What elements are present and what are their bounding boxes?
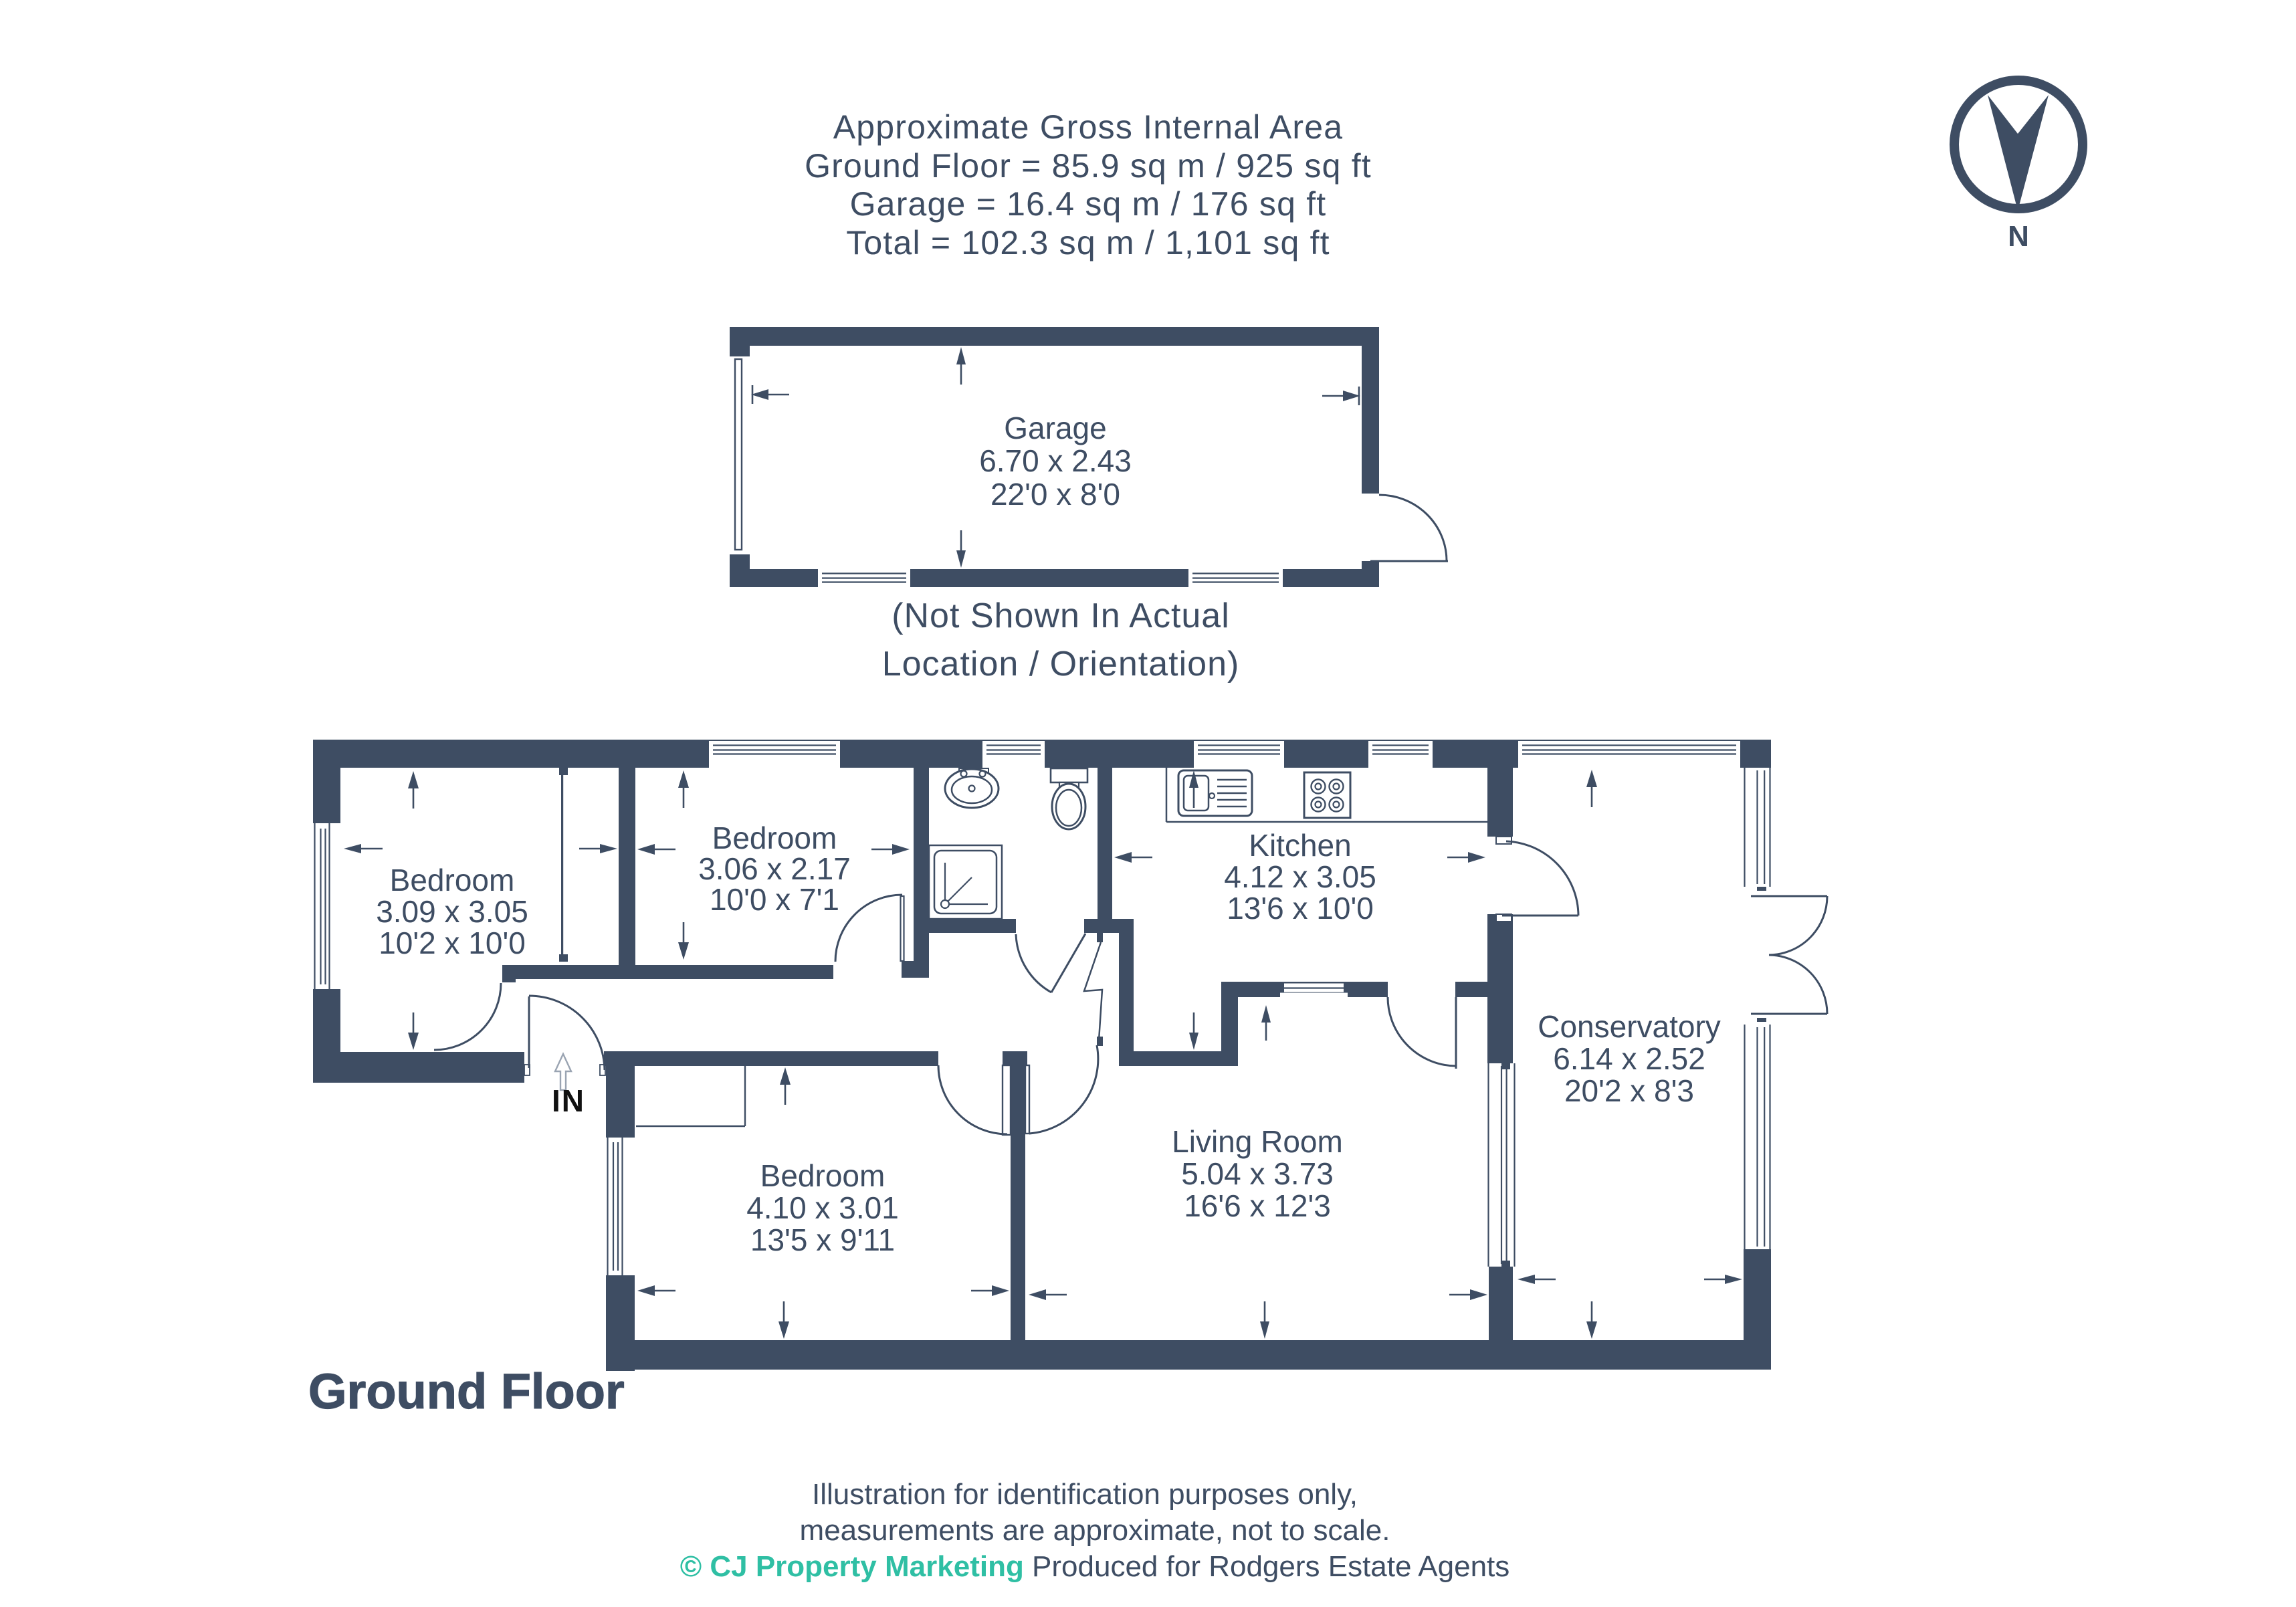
svg-text:10'2 x 10'0: 10'2 x 10'0	[379, 926, 526, 960]
svg-text:13'6 x 10'0: 13'6 x 10'0	[1227, 891, 1374, 926]
svg-text:4.12 x 3.05: 4.12 x 3.05	[1224, 859, 1376, 894]
svg-text:10'0 x 7'1: 10'0 x 7'1	[710, 882, 839, 917]
svg-text:© CJ Property Marketing Produ: © CJ Property Marketing Produced for Rod…	[680, 1550, 1510, 1583]
svg-text:22'0 x 8'0: 22'0 x 8'0	[990, 477, 1120, 512]
svg-text:Kitchen: Kitchen	[1249, 828, 1351, 863]
svg-text:Bedroom: Bedroom	[760, 1158, 885, 1193]
svg-text:Garage: Garage	[1004, 411, 1106, 445]
svg-text:Bedroom: Bedroom	[712, 821, 837, 855]
svg-text:IN: IN	[552, 1083, 585, 1118]
svg-text:Ground Floor = 85.9 sq m / 925: Ground Floor = 85.9 sq m / 925 sq ft	[805, 147, 1372, 185]
svg-text:Approximate Gross Internal Are: Approximate Gross Internal Area	[833, 108, 1344, 146]
svg-text:6.14 x 2.52: 6.14 x 2.52	[1553, 1041, 1705, 1076]
svg-text:Bedroom: Bedroom	[390, 863, 515, 897]
svg-text:3.06 x 2.17: 3.06 x 2.17	[698, 851, 851, 886]
svg-text:16'6 x 12'3: 16'6 x 12'3	[1184, 1188, 1331, 1223]
svg-text:3.09 x 3.05: 3.09 x 3.05	[376, 894, 528, 929]
svg-text:Ground Floor: Ground Floor	[308, 1364, 625, 1419]
svg-text:N: N	[2008, 220, 2029, 253]
svg-text:4.10 x 3.01: 4.10 x 3.01	[746, 1190, 899, 1225]
svg-text:Total = 102.3 sq m / 1,101 sq: Total = 102.3 sq m / 1,101 sq ft	[846, 224, 1330, 261]
svg-text:(Not Shown In Actual: (Not Shown In Actual	[892, 597, 1230, 635]
svg-text:5.04 x 3.73: 5.04 x 3.73	[1181, 1156, 1334, 1191]
svg-text:Illustration for identificatio: Illustration for identification purposes…	[812, 1478, 1358, 1511]
svg-text:20'2 x 8'3: 20'2 x 8'3	[1564, 1073, 1694, 1108]
svg-text:Location / Orientation): Location / Orientation)	[882, 645, 1240, 683]
svg-text:Conservatory: Conservatory	[1538, 1009, 1721, 1044]
svg-text:measurements are approximate,: measurements are approximate, not to sca…	[800, 1514, 1390, 1547]
svg-text:Living Room: Living Room	[1172, 1124, 1343, 1159]
svg-text:Garage = 16.4 sq m / 176 sq ft: Garage = 16.4 sq m / 176 sq ft	[850, 185, 1327, 223]
svg-text:6.70 x 2.43: 6.70 x 2.43	[979, 443, 1132, 478]
svg-text:13'5 x 9'11: 13'5 x 9'11	[750, 1222, 895, 1257]
